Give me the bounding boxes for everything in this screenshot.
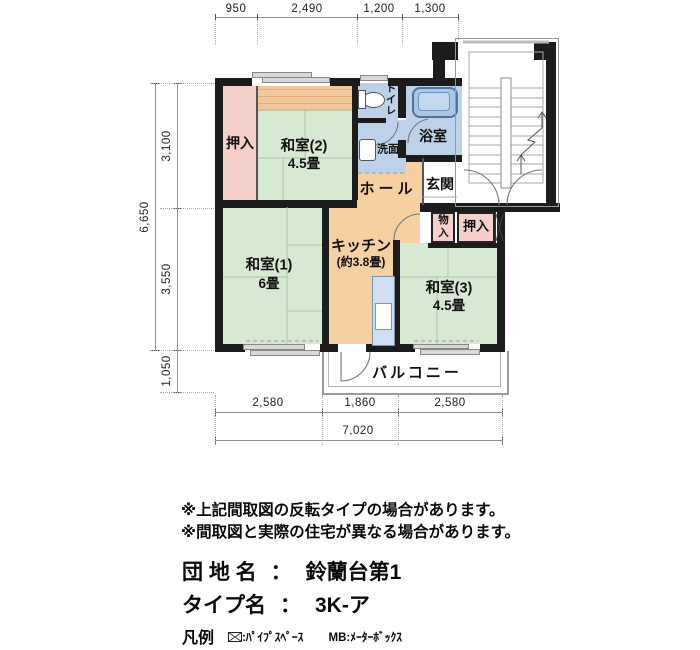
genkan-partition: [422, 158, 424, 205]
note-line-1: ※上記間取図の反転タイプの場合があります。: [181, 500, 505, 522]
wall-segment: [358, 118, 386, 123]
pipe-space-icon: [228, 632, 242, 642]
legend-items: :ﾊﾟｲﾌﾟｽﾍﾟｰｽ MB:ﾒｰﾀｰﾎﾞｯｸｽ: [228, 629, 402, 645]
label-washitsu3-name: 和室(3): [426, 281, 473, 298]
type-name-separator: ：: [280, 594, 301, 617]
label-oshiire-right: 押入: [463, 220, 489, 235]
toilet-tank-icon: [358, 90, 366, 109]
dim-left-2: 1,050: [161, 355, 173, 386]
floor-plan-page: 押入 和室(2) 4.5畳 トイレ 洗面 浴室 ホール 玄関 物入 押入 キッチ…: [0, 0, 700, 650]
label-kitchen-size: (約3.8畳): [337, 256, 386, 270]
type-name-value: 3K-ア: [315, 594, 370, 617]
estate-name-value: 鈴蘭台第1: [306, 561, 402, 584]
dim-bottom-total: 7,020: [342, 425, 373, 437]
window-washitsu1-b: [250, 350, 320, 356]
type-name-label: タイプ名: [182, 594, 266, 617]
wall-segment: [320, 344, 338, 352]
dim-left-total: 6,650: [139, 201, 151, 232]
dim-top-2: 1,200: [363, 3, 394, 15]
dim-line-top: [215, 17, 458, 18]
label-washroom: 洗面: [377, 144, 399, 157]
wall-segment: [215, 78, 252, 86]
label-washitsu1-name: 和室(1): [246, 258, 293, 275]
legend-meter-box: MB:ﾒｰﾀｰﾎﾞｯｸｽ: [329, 632, 402, 644]
label-bathroom: 浴室: [419, 128, 447, 144]
dim-left-0: 3,100: [161, 130, 173, 161]
label-washitsu2-size: 4.5畳: [288, 156, 320, 172]
sink-icon: [359, 139, 376, 161]
label-monoire: 物入: [437, 214, 450, 240]
dim-bottom-1: 1,860: [344, 397, 375, 409]
label-balcony: バルコニー: [372, 364, 462, 381]
window-washitsu3-b: [420, 349, 480, 355]
legend-pipe-space: :ﾊﾟｲﾌﾟｽﾍﾟｰｽ: [242, 632, 303, 644]
dim-top-0: 950: [226, 3, 247, 15]
dim-left-1: 3,550: [161, 263, 173, 294]
room-hall: [406, 162, 423, 173]
dim-line-left-outer: [155, 83, 156, 350]
label-oshiire-top: 押入: [226, 135, 254, 151]
wall-segment: [398, 83, 406, 118]
label-hall: ホール: [359, 180, 416, 197]
wall-segment: [215, 344, 245, 352]
label-washitsu3-size: 4.5畳: [433, 298, 465, 314]
label-kitchen-name: キッチン: [331, 237, 391, 254]
label-washitsu1-size: 6畳: [258, 276, 279, 292]
dim-bottom-2: 2,580: [434, 397, 465, 409]
dim-top-1: 2,490: [291, 3, 322, 15]
wall-segment: [215, 78, 223, 351]
engawa-strip: [258, 86, 352, 110]
wall-segment: [428, 243, 498, 248]
dim-line-left-inner: [177, 83, 178, 392]
bathtub-inner: [418, 92, 450, 111]
estate-name-label: 団 地 名: [182, 561, 257, 584]
wall-segment: [330, 200, 357, 208]
wall-segment: [322, 207, 329, 344]
fusuma-partition: [256, 86, 258, 200]
label-genkan: 玄関: [426, 176, 454, 192]
kitchen-sink-icon: [375, 303, 392, 330]
dim-line-bottom-inner: [215, 412, 502, 413]
window-washitsu2-b: [262, 77, 330, 83]
wall-segment: [497, 205, 505, 351]
note-line-2: ※間取図と実際の住宅が異なる場合があります。: [181, 522, 520, 544]
label-toilet: トイレ: [385, 84, 397, 117]
wall-segment: [398, 140, 406, 158]
estate-name-line: 団 地 名：鈴蘭台第1: [182, 556, 401, 586]
stairs-icon: [455, 38, 557, 205]
wall-segment: [406, 155, 462, 162]
legend-title: 凡例: [182, 624, 214, 648]
dim-line-bottom-outer: [215, 440, 502, 441]
label-washitsu2-name: 和室(2): [281, 139, 328, 156]
type-name-line: タイプ名：3K-ア: [182, 589, 370, 619]
window-toilet: [360, 75, 388, 81]
estate-name-separator: ：: [271, 561, 292, 584]
dim-top-3: 1,300: [414, 3, 445, 15]
dim-bottom-0: 2,580: [252, 397, 283, 409]
